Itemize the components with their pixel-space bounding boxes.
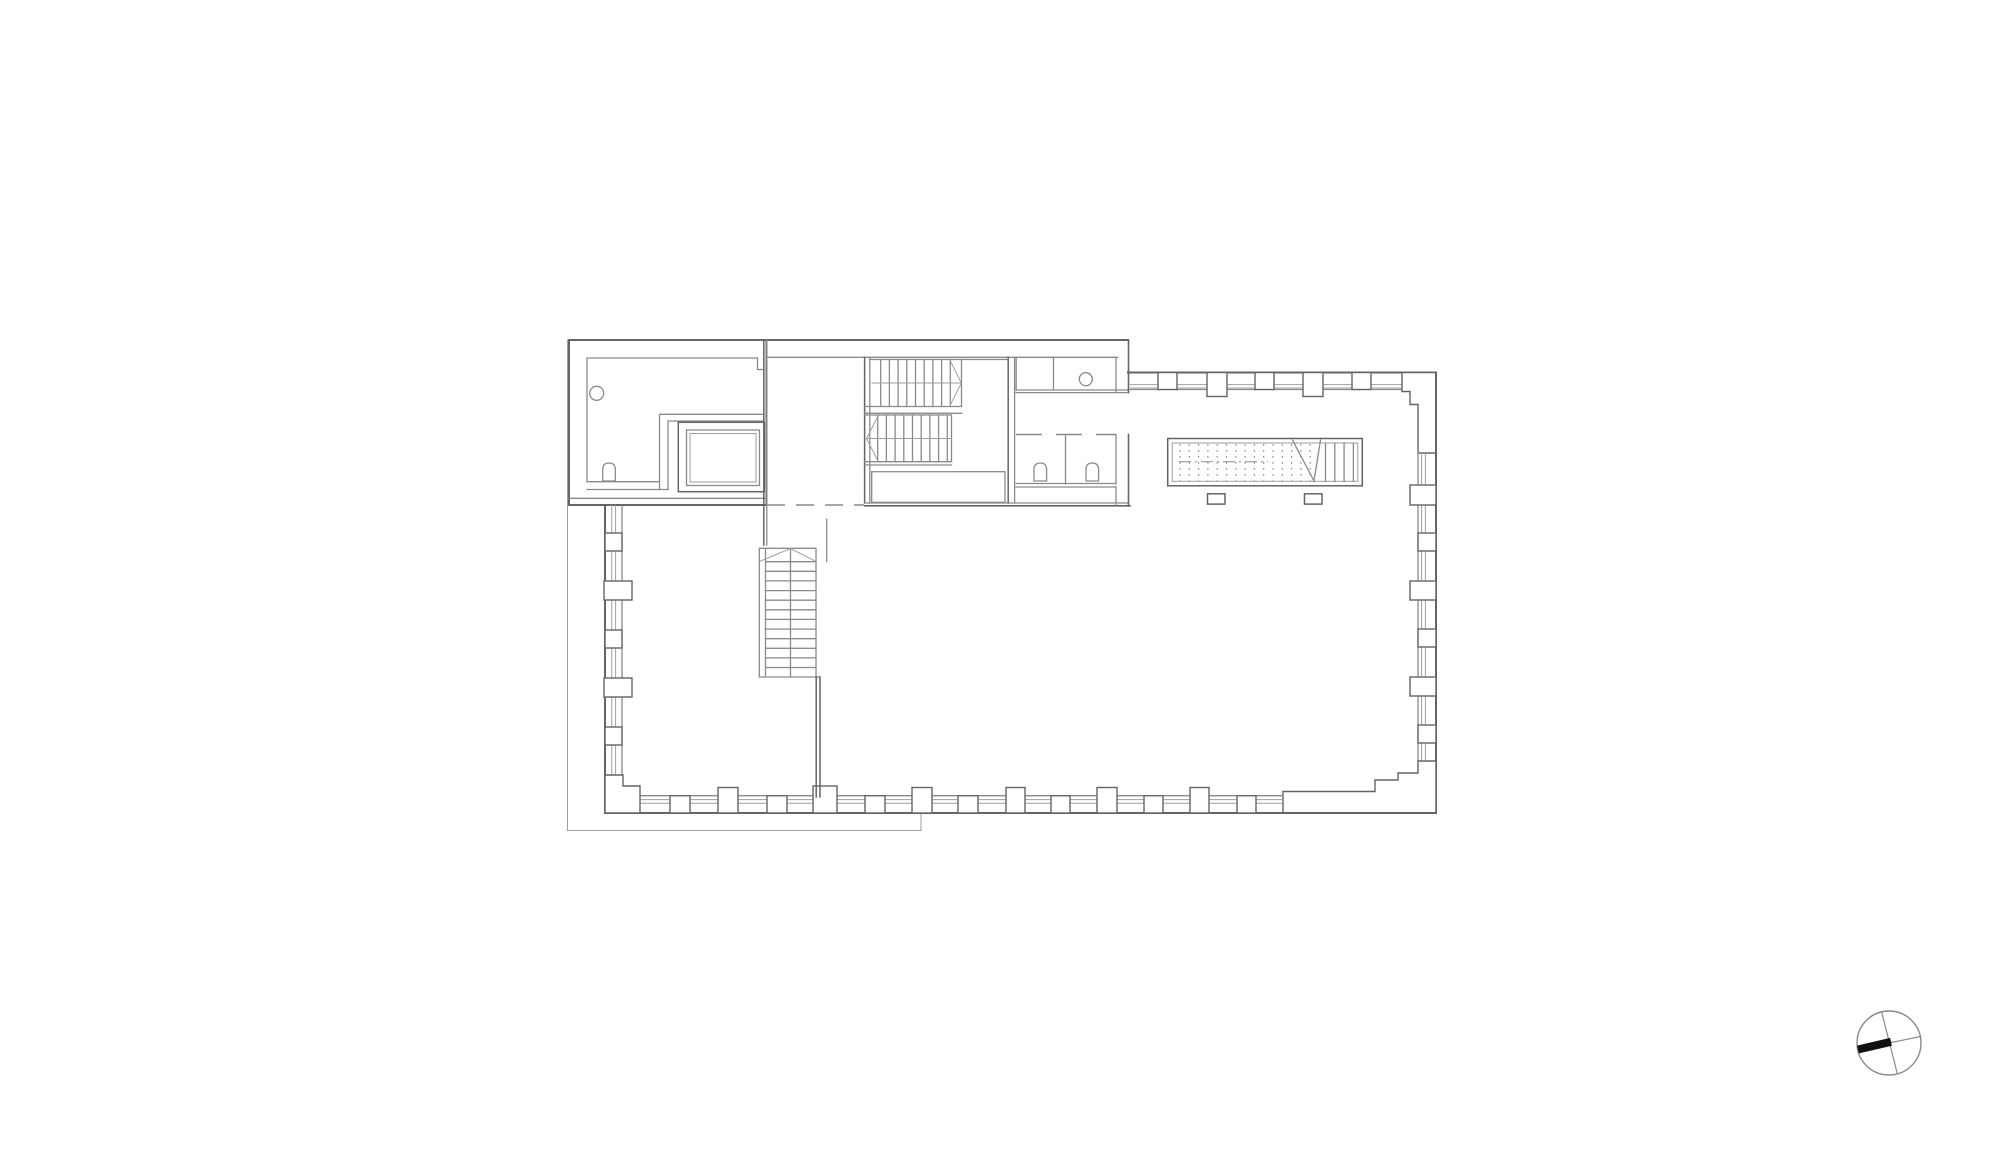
dividing-wall (816, 677, 820, 797)
floor-plan-drawing (0, 0, 2000, 1155)
toilet-icon (1034, 463, 1047, 481)
north-arrow-filled-arm (1858, 1042, 1891, 1050)
corner-ne (1402, 373, 1436, 454)
corner-se (1283, 761, 1436, 813)
roof-access-stair-hatched (1168, 439, 1363, 505)
perimeter-wall-left (604, 505, 640, 813)
stair-direction-arrow (760, 549, 817, 562)
column-base (1305, 494, 1323, 504)
toilet-icon (1086, 463, 1099, 481)
perimeter-wall-top (1128, 373, 1436, 454)
toilet-icon (603, 463, 616, 481)
main-staircase-double-flight (865, 360, 1008, 503)
north-arrow-icon (1857, 1011, 1921, 1075)
sink-icon (1079, 373, 1092, 386)
stair-landing (872, 472, 1005, 503)
corner-sw (605, 775, 640, 813)
lower-staircase (759, 548, 820, 797)
column-base (1208, 494, 1226, 504)
sink-icon (590, 386, 604, 400)
floor-plan-canvas (0, 0, 2000, 1155)
break-line (1293, 440, 1321, 481)
toilet-rooms (1016, 340, 1129, 506)
elevator-shaft (678, 422, 764, 491)
